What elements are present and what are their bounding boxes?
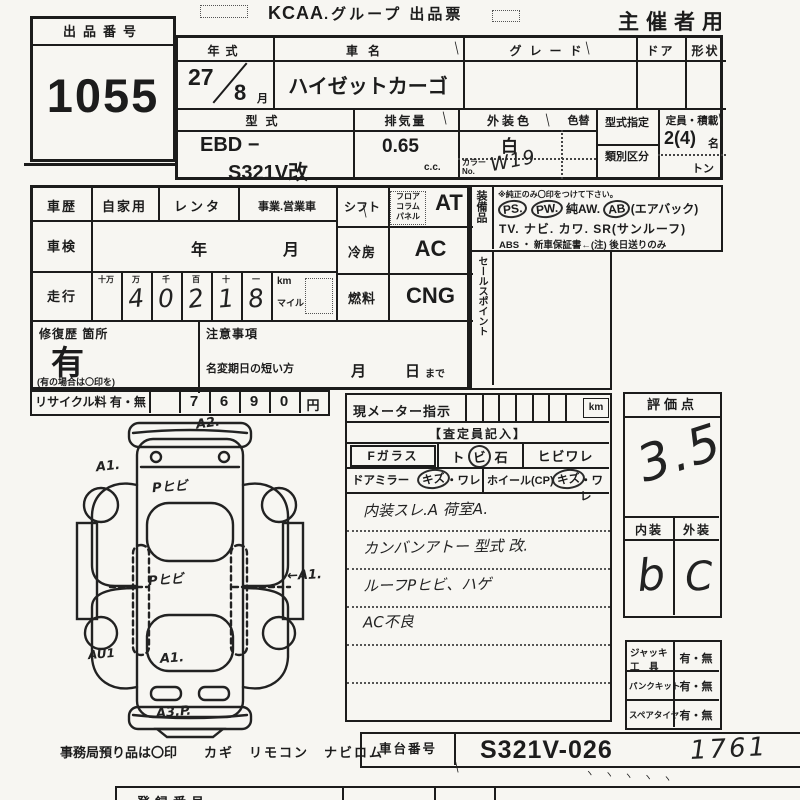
exhibit-number-box: 出品番号 1055	[30, 16, 176, 162]
damage-note-rear: A1.	[160, 650, 185, 667]
equipment-line-2: TV. ナビ. カワ. SR(サンルーフ)	[499, 220, 686, 237]
rating-score: 3.5	[630, 412, 729, 494]
grid-line	[434, 788, 436, 800]
vehicle-spec-table: 年式 車名 グレード ドア 形状 27 8 月 ハイゼットカーゴ 型式 EBD …	[175, 35, 723, 180]
chassis-number-row: 車台番号 S321V-026 1761	[360, 732, 800, 768]
fuel-value: CNG	[388, 283, 473, 309]
grid-line	[482, 395, 484, 421]
displacement-value: 0.65	[353, 136, 448, 158]
registration-row-clipped: 登録番号	[115, 786, 800, 800]
front-glass-label: Fガラス	[350, 445, 436, 467]
accessories-box: ジャッキ工 具 有・無 パンクキット 有・無 スペアタイヤ 有・無	[625, 640, 722, 730]
windshield	[147, 503, 233, 561]
caution-label: 注意事項	[206, 325, 258, 342]
history-rental: レンタ	[158, 196, 238, 215]
grid-line	[482, 467, 484, 492]
rating-box: 評価点 3.5 内装 外装 b C	[623, 392, 722, 618]
inspector-note: ルーフPヒビ、ハゲ	[363, 573, 492, 596]
grid-line	[347, 442, 609, 444]
grid-line	[565, 395, 567, 421]
capacity-value: 2(4)	[664, 128, 696, 149]
wheel-label: ホイール(CP)	[487, 472, 554, 488]
interior-grade: b	[635, 549, 667, 602]
grid-line	[33, 271, 338, 273]
recolor-label: 色替	[561, 112, 596, 128]
year-value: 27	[188, 64, 214, 91]
grid-line	[347, 492, 609, 494]
jack-label: ジャッキ工 具	[630, 645, 668, 673]
tail-light-left	[151, 687, 181, 700]
name-change-label: 名変期日の短い方	[206, 360, 294, 376]
grid-line	[336, 273, 473, 275]
damage-note-roof: Pヒビ	[147, 568, 184, 589]
inspector-note: 内装スレ.A 荷室A.	[363, 498, 488, 521]
side-panel-rear-left	[92, 588, 137, 688]
repair-note: (有の場合は〇印を)	[37, 375, 115, 388]
spare-tire-label: スペアタイヤ	[629, 709, 679, 721]
designation-label: 型式指定	[596, 114, 658, 130]
mirror-left	[151, 452, 161, 462]
chassis-printed: S321V-026	[480, 736, 613, 765]
grid-line	[625, 516, 719, 518]
damage-note-right-side: ←A1.	[287, 567, 323, 584]
grid-line	[625, 539, 719, 541]
pw-circled: PW.	[530, 198, 564, 219]
grid-line	[347, 421, 609, 423]
stamp-box	[492, 10, 520, 22]
note-line	[347, 530, 610, 532]
aw-item: 純AW.	[566, 202, 600, 216]
grid-line	[492, 187, 494, 249]
door-label: ドア	[636, 42, 685, 59]
tail-light-right	[199, 687, 229, 700]
car-name-value: ハイゼットカーゴ	[273, 70, 463, 99]
damage-note-rear-left: AU1	[87, 646, 115, 662]
brand-logo: KCAA	[268, 3, 324, 24]
side-panel-front-left	[92, 484, 137, 586]
grid-line	[498, 395, 500, 421]
shaken-year: 年	[191, 236, 207, 260]
grid-line	[33, 320, 473, 322]
grid-line	[198, 320, 200, 393]
rear-step	[157, 729, 223, 737]
grid-line	[33, 220, 338, 222]
crack-label: ヒビワレ	[522, 446, 609, 465]
history-private: 自家用	[91, 196, 158, 215]
equipment-line-3: ABS ・ 新車保証書←(注) 後日送りのみ	[499, 237, 666, 251]
color-no-label: カラーNo.	[462, 159, 486, 177]
mileage-label: 走行	[33, 286, 91, 305]
recycle-digit: 9	[239, 393, 269, 410]
mirror-ware-label: ・ワレ	[446, 472, 481, 488]
grid-line	[532, 395, 534, 421]
shaken-label: 車検	[33, 236, 91, 255]
shaken-month: 月	[283, 236, 299, 260]
model-prefix: EBD −	[200, 134, 259, 157]
wheel-ware-label: ・ワレ	[580, 472, 610, 504]
side-sill-left	[77, 523, 97, 619]
flat-kit-value: 有・無	[673, 678, 719, 694]
shift-value: AT	[425, 190, 473, 216]
digit-unit: 十万	[91, 274, 121, 285]
grid-line	[658, 154, 726, 156]
classification-label: 類別区分	[596, 148, 658, 164]
assessor-table: 現メーター指示 km 【査定員記入】 Fガラス ト ビ 石 ヒビワレ ドアミラー…	[345, 393, 612, 722]
damage-note-front-left: A1.	[95, 458, 120, 475]
grid-line	[336, 226, 473, 228]
front-bumper	[129, 423, 251, 447]
grid-line	[494, 788, 496, 800]
grid-line	[149, 392, 151, 413]
recycle-digit: 0	[269, 393, 299, 410]
month-value: 8	[234, 80, 246, 106]
unit-checkbox	[305, 278, 333, 314]
spare-tire-value: 有・無	[673, 707, 719, 723]
inspector-note: カンバンアトー 型式 改.	[363, 535, 528, 559]
mileage-digit: 2	[179, 282, 213, 315]
sheet-title: KCAA .グループ 出品票	[268, 3, 463, 24]
note-line	[347, 682, 610, 684]
jack-value: 有・無	[673, 650, 719, 666]
name-change-day: 日	[405, 360, 420, 381]
grid-line	[178, 60, 726, 62]
shape-label: 形状	[685, 42, 726, 59]
exterior-grade: C	[683, 553, 714, 601]
ton-label: トン	[692, 160, 714, 176]
side-panel-front-right	[243, 484, 288, 586]
equipment-box: 装備品 ※純正のみ〇印をつけて下さい。 PS. PW. 純AW. AB(エアバッ…	[470, 185, 723, 252]
grid-line	[342, 788, 344, 800]
grid-line	[465, 395, 467, 421]
inspector-note: AC不良	[363, 611, 414, 633]
ab-circled: AB	[603, 199, 632, 220]
name-change-month: 月	[351, 360, 366, 381]
displacement-unit: c.c.	[424, 162, 441, 173]
damage-note-rear-bumper: A3.P.	[155, 703, 191, 721]
history-table: 車歴 自家用 レンタ 事業.営業車 車検 年 月 走行 十万 万 千 百 十 一…	[30, 185, 470, 390]
mileage-digit: 4	[120, 283, 153, 315]
door-mirror-label: ドアミラー	[352, 472, 409, 488]
damage-note-hood: Pヒビ	[151, 475, 188, 496]
mile-label: マイル	[277, 296, 304, 309]
grid-line	[271, 271, 273, 320]
sales-point-label: セールスポイント	[476, 256, 487, 336]
exhibit-number-label: 出品番号	[33, 19, 173, 46]
equipment-note: ※純正のみ〇印をつけて下さい。	[498, 189, 618, 200]
chassis-handwritten: 1761	[689, 732, 769, 766]
car-name-label: 車名	[273, 42, 463, 59]
assessor-header: 【査定員記入】	[347, 425, 609, 442]
organizer-label: 主催者用	[618, 6, 730, 36]
note-line	[347, 568, 610, 570]
recycle-fee-row: リサイクル料 有・無 7 6 9 0 円	[30, 390, 330, 416]
airbag-note: (エアバック)	[631, 202, 699, 216]
side-panel-rear-right	[243, 588, 288, 688]
cooling-value: AC	[388, 236, 473, 262]
model-code: S321V改	[228, 156, 308, 185]
model-label: 型式	[178, 112, 353, 129]
grade-label: グレード	[463, 42, 636, 59]
meter-unit: km	[583, 398, 609, 418]
sales-point-box: セールスポイント	[470, 252, 612, 390]
name-change-until: まで	[425, 365, 445, 380]
mileage-digit: 0	[150, 283, 182, 314]
wheel-rear-right	[263, 617, 295, 649]
note-line	[347, 606, 610, 608]
stone-circled: ビ	[467, 444, 492, 469]
ps-circled: PS.	[497, 199, 528, 220]
grid-line	[596, 144, 658, 146]
year-label: 年式	[178, 42, 273, 59]
registration-label: 登録番号	[137, 792, 209, 800]
recycle-label: リサイクル料 有・無	[32, 392, 149, 413]
office-deposit-note: 事務局預り品は〇印	[60, 742, 177, 761]
sheet-title-text: .グループ 出品票	[324, 3, 463, 24]
yen-label: 円	[299, 395, 327, 414]
auction-sheet: 出品番号 1055 KCAA .グループ 出品票 主催者用 年式 車名 グレード…	[0, 0, 800, 800]
deposit-items: カギ リモコン ナビロム	[204, 742, 384, 761]
stamp-box	[200, 5, 248, 18]
tick-marks-row: ヽ ヽ ヽ ヽ ヽ	[585, 766, 677, 785]
mileage-digit: 8	[239, 282, 272, 314]
exterior-label: 外装	[675, 521, 719, 538]
equipment-label: 装備品	[475, 190, 486, 223]
grid-line	[561, 130, 563, 179]
mirror-right	[219, 452, 229, 462]
km-label: km	[277, 276, 291, 287]
grid-line	[492, 252, 494, 385]
capacity-unit: 名	[708, 135, 719, 151]
note-line	[347, 644, 610, 646]
month-unit: 月	[257, 90, 268, 106]
recycle-digit: 7	[179, 393, 209, 410]
grid-line	[178, 108, 726, 110]
stone-chip-item: ト ビ 石	[437, 445, 522, 468]
history-business: 事業.営業車	[238, 198, 336, 214]
grid-line	[24, 163, 177, 166]
exhibit-number: 1055	[33, 68, 173, 123]
mileage-digit: 1	[210, 283, 242, 315]
grid-line	[515, 395, 517, 421]
meter-label: 現メーター指示	[353, 401, 451, 420]
equipment-line-1: PS. PW. 純AW. AB(エアバック)	[498, 200, 698, 218]
grid-line	[627, 699, 719, 701]
wheel-rear-left	[85, 617, 117, 649]
grid-line	[548, 395, 550, 421]
history-label: 車歴	[33, 196, 91, 215]
recycle-digit: 6	[209, 393, 239, 410]
shift-options: フロアコラムパネル	[390, 191, 426, 225]
interior-label: 内装	[625, 521, 673, 538]
